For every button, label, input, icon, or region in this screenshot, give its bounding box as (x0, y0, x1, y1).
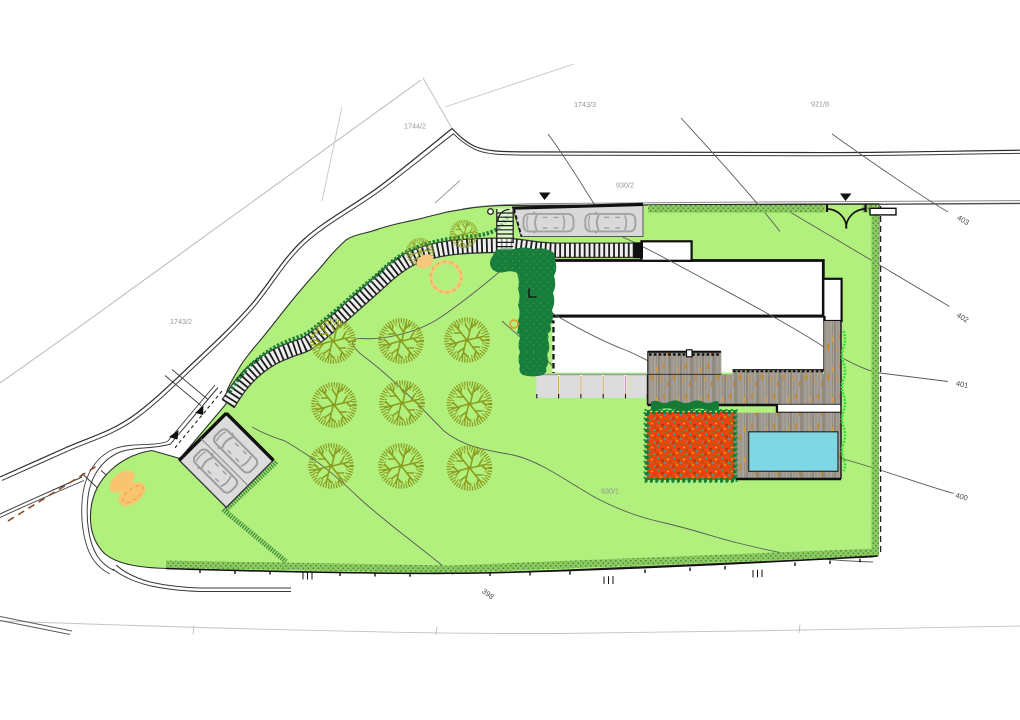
svg-text:921/8: 921/8 (811, 100, 829, 109)
svg-text:930/1: 930/1 (601, 487, 619, 496)
svg-text:1743/2: 1743/2 (170, 317, 192, 326)
svg-text:1743/3: 1743/3 (574, 100, 596, 109)
svg-text:930/2: 930/2 (616, 181, 634, 190)
svg-text:1744/2: 1744/2 (404, 122, 426, 131)
